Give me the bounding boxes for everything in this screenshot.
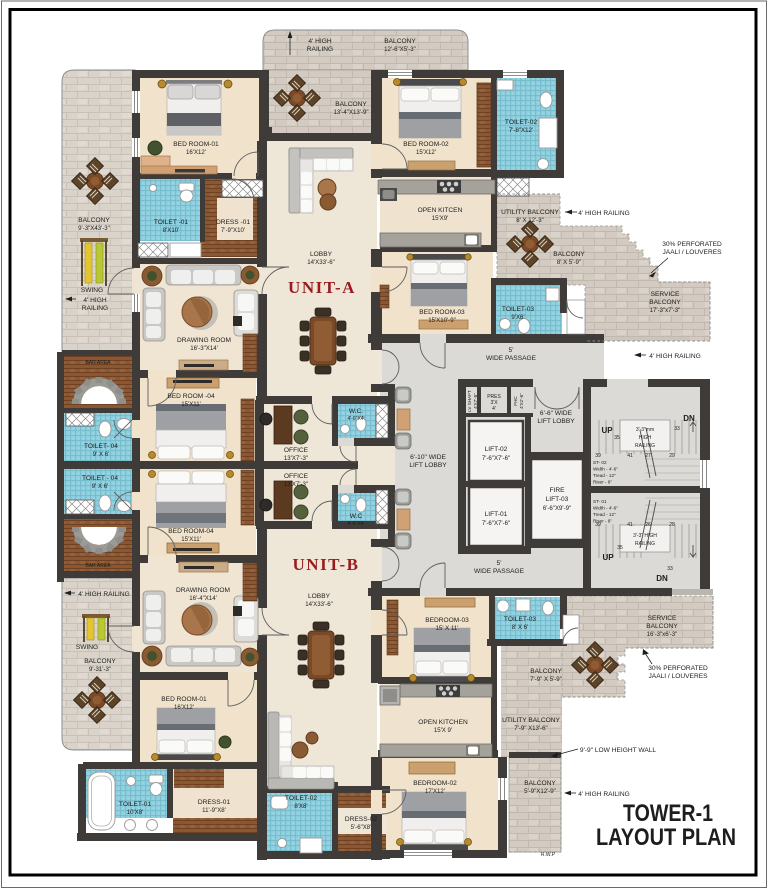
svg-text:9' X 6': 9' X 6' — [92, 483, 109, 490]
svg-text:12'-6"X5'-3": 12'-6"X5'-3" — [384, 46, 416, 53]
svg-text:4'-6"X4': 4'-6"X4' — [347, 416, 364, 422]
svg-text:TOWER-1: TOWER-1 — [623, 800, 713, 827]
svg-text:Tread - 12": Tread - 12" — [593, 512, 616, 517]
svg-text:17'-3"x7'-3": 17'-3"x7'-3" — [650, 307, 681, 314]
svg-text:SWING: SWING — [76, 644, 98, 651]
svg-text:OFFICE: OFFICE — [284, 447, 309, 454]
svg-text:HIGH: HIGH — [639, 435, 652, 441]
svg-text:39: 39 — [595, 453, 601, 459]
svg-text:LAYOUT PLAN: LAYOUT PLAN — [596, 824, 736, 851]
svg-text:4' HIGH: 4' HIGH — [308, 38, 331, 45]
svg-text:7'-9" X 5'-9": 7'-9" X 5'-9" — [530, 676, 562, 683]
svg-text:BALCONY: BALCONY — [335, 101, 367, 108]
svg-text:UP: UP — [602, 553, 614, 562]
svg-text:4' HIGH RAILING: 4' HIGH RAILING — [578, 210, 629, 217]
svg-text:13'X7'-3": 13'X7'-3" — [284, 455, 308, 462]
svg-text:41: 41 — [627, 522, 633, 528]
svg-text:TOILET-02: TOILET-02 — [505, 119, 537, 126]
svg-text:7'-9"X10': 7'-9"X10' — [221, 227, 245, 234]
svg-text:LIFT-01: LIFT-01 — [485, 511, 508, 518]
svg-text:8' X 5'-9": 8' X 5'-9" — [557, 259, 581, 266]
svg-text:RAILING: RAILING — [635, 443, 655, 449]
svg-text:UP: UP — [601, 426, 613, 435]
svg-text:9'-31'-3": 9'-31'-3" — [89, 666, 111, 673]
svg-text:TOILET-01: TOILET-01 — [119, 801, 151, 808]
svg-text:15'X9': 15'X9' — [432, 215, 449, 222]
svg-text:FHC: FHC — [513, 396, 518, 406]
svg-text:OFFICE: OFFICE — [284, 473, 309, 480]
svg-text:27: 27 — [645, 453, 651, 459]
svg-text:6'-6" WIDE: 6'-6" WIDE — [540, 410, 573, 417]
svg-text:TOILET-03: TOILET-03 — [502, 306, 534, 313]
svg-text:15'X10'-9": 15'X10'-9" — [428, 317, 456, 324]
svg-text:14'X33'-6": 14'X33'-6" — [305, 601, 333, 608]
svg-text:9'X6': 9'X6' — [511, 314, 524, 321]
svg-text:DRAWING ROOM: DRAWING ROOM — [176, 587, 230, 594]
svg-text:8'X8': 8'X8' — [294, 803, 307, 810]
svg-text:LIFT LOBBY: LIFT LOBBY — [537, 418, 575, 425]
svg-text:LOBBY: LOBBY — [310, 251, 333, 258]
svg-text:4' HIGH RAILING: 4' HIGH RAILING — [649, 353, 700, 360]
svg-text:UTILITY BALCONY: UTILITY BALCONY — [501, 209, 559, 216]
svg-text:SERVICE: SERVICE — [651, 291, 680, 298]
svg-text:BALCONY: BALCONY — [649, 299, 681, 306]
svg-text:RAILING: RAILING — [307, 46, 333, 53]
svg-text:BAR AREA: BAR AREA — [85, 360, 111, 366]
svg-text:WIDE PASSAGE: WIDE PASSAGE — [474, 568, 525, 575]
svg-text:TOILET- 04: TOILET- 04 — [84, 443, 118, 450]
svg-text:29: 29 — [669, 453, 675, 459]
svg-text:DN: DN — [683, 414, 695, 423]
svg-text:8' X 6': 8' X 6' — [512, 624, 529, 631]
svg-text:LIFT-02: LIFT-02 — [485, 446, 508, 453]
svg-text:9' X 6': 9' X 6' — [93, 451, 110, 458]
svg-text:15'X12': 15'X12' — [416, 149, 436, 156]
svg-text:FIRE: FIRE — [549, 487, 565, 494]
svg-text:UNIT-B: UNIT-B — [293, 555, 360, 574]
svg-text:ST- 01: ST- 01 — [593, 499, 607, 504]
svg-text:7'-6"X7'-6": 7'-6"X7'-6" — [482, 520, 510, 527]
svg-text:OPEN KITCHEN: OPEN KITCHEN — [418, 719, 468, 726]
svg-text:4'X7'-6": 4'X7'-6" — [473, 393, 478, 409]
svg-text:6'-10" WIDE: 6'-10" WIDE — [410, 454, 446, 461]
svg-text:UTILITY BALCONY: UTILITY BALCONY — [502, 717, 560, 724]
svg-text:10'X8': 10'X8' — [127, 809, 144, 816]
svg-text:16'X12': 16'X12' — [186, 149, 206, 156]
svg-text:4': 4' — [492, 406, 496, 412]
svg-text:16'-3"X14': 16'-3"X14' — [190, 345, 218, 352]
svg-text:15' X 11': 15' X 11' — [436, 625, 459, 632]
svg-text:DRAWING ROOM: DRAWING ROOM — [177, 337, 231, 344]
svg-text:35: 35 — [614, 435, 620, 441]
svg-text:Riser - 6": Riser - 6" — [593, 480, 612, 485]
svg-text:Tread - 12": Tread - 12" — [593, 473, 616, 478]
svg-text:39: 39 — [595, 522, 601, 528]
svg-text:5': 5' — [497, 560, 502, 567]
svg-text:BALCONY: BALCONY — [384, 38, 416, 45]
svg-text:Width - 4'-6": Width - 4'-6" — [593, 467, 618, 472]
svg-text:BEDROOM-03: BEDROOM-03 — [425, 617, 469, 624]
svg-text:5': 5' — [509, 347, 514, 354]
svg-text:28: 28 — [669, 522, 675, 528]
svg-text:4'-6"X4': 4'-6"X4' — [347, 521, 364, 527]
svg-text:4' HIGH RAILING: 4' HIGH RAILING — [78, 591, 129, 598]
svg-text:JAALI / LOUVERES: JAALI / LOUVERES — [663, 249, 723, 256]
svg-text:BED ROOM -04: BED ROOM -04 — [167, 393, 215, 400]
svg-text:16'X12': 16'X12' — [174, 704, 194, 711]
svg-text:3'-3" HIGH: 3'-3" HIGH — [633, 533, 657, 539]
svg-text:TOILET - 04: TOILET - 04 — [82, 475, 118, 482]
svg-text:JAALI / LOUVERES: JAALI / LOUVERES — [649, 673, 709, 680]
svg-text:TOILET-03: TOILET-03 — [504, 616, 536, 623]
svg-text:BED ROOM-04: BED ROOM-04 — [168, 528, 214, 535]
svg-text:R.W.P: R.W.P — [541, 852, 556, 858]
svg-text:SWING: SWING — [81, 287, 103, 294]
svg-text:RAILING: RAILING — [635, 541, 655, 547]
svg-text:DRESS -01: DRESS -01 — [216, 219, 250, 226]
svg-text:11'-9"X8': 11'-9"X8' — [202, 807, 226, 814]
svg-text:8'X10': 8'X10' — [163, 227, 180, 234]
svg-text:W.C.: W.C. — [349, 408, 363, 415]
svg-text:4' HIGH: 4' HIGH — [83, 297, 106, 304]
svg-text:3'-3"mm: 3'-3"mm — [636, 427, 654, 433]
svg-text:BALCONY: BALCONY — [524, 780, 556, 787]
svg-text:SERVICE: SERVICE — [648, 615, 677, 622]
svg-text:BALCONY: BALCONY — [530, 668, 562, 675]
svg-text:8' X 12'-3": 8' X 12'-3" — [516, 217, 544, 224]
svg-text:BED ROOM-01: BED ROOM-01 — [173, 141, 219, 148]
svg-text:33: 33 — [674, 426, 680, 432]
svg-text:RAILING: RAILING — [82, 305, 108, 312]
svg-text:BED ROOM-01: BED ROOM-01 — [161, 696, 207, 703]
svg-text:BEDROOM-02: BEDROOM-02 — [413, 780, 457, 787]
svg-text:17'X12': 17'X12' — [425, 788, 445, 795]
svg-text:6'-6"X9'-9": 6'-6"X9'-9" — [543, 505, 571, 512]
svg-text:13'X7'-3": 13'X7'-3" — [284, 481, 308, 488]
svg-text:35: 35 — [617, 545, 623, 551]
svg-text:TOILET-02: TOILET-02 — [285, 795, 317, 802]
svg-text:UNIT-A: UNIT-A — [288, 278, 356, 297]
svg-text:30% PERFORATED: 30% PERFORATED — [662, 241, 722, 248]
svg-text:BALCONY: BALCONY — [78, 217, 110, 224]
svg-text:41: 41 — [627, 453, 633, 459]
svg-text:ST- 02: ST- 02 — [593, 460, 607, 465]
svg-text:7'-8"X12': 7'-8"X12' — [509, 127, 533, 134]
svg-text:30% PERFORATED: 30% PERFORATED — [648, 665, 708, 672]
svg-text:LIFT LOBBY: LIFT LOBBY — [409, 462, 447, 469]
svg-text:5'-6"X8': 5'-6"X8' — [351, 824, 372, 831]
svg-text:BED ROOM-02: BED ROOM-02 — [403, 141, 449, 148]
svg-text:LOBBY: LOBBY — [308, 593, 331, 600]
svg-text:15'X 9': 15'X 9' — [434, 727, 452, 734]
svg-text:5'-9"X12'-9": 5'-9"X12'-9" — [524, 788, 556, 795]
svg-text:TOILET -01: TOILET -01 — [154, 219, 189, 226]
svg-text:LV SHAFT: LV SHAFT — [467, 390, 472, 412]
svg-text:4' HIGH RAILING: 4' HIGH RAILING — [578, 791, 629, 798]
svg-text:BALCONY: BALCONY — [646, 623, 678, 630]
svg-text:BED ROOM-03: BED ROOM-03 — [419, 309, 465, 316]
svg-text:7'-9" X13'-6": 7'-9" X13'-6" — [514, 725, 547, 732]
svg-text:15'X11': 15'X11' — [181, 401, 201, 408]
svg-text:BALCONY: BALCONY — [84, 658, 116, 665]
svg-text:16'-4"X14': 16'-4"X14' — [189, 595, 217, 602]
svg-text:15'X11': 15'X11' — [181, 536, 201, 543]
svg-text:33: 33 — [667, 566, 673, 572]
svg-text:DRESS-01: DRESS-01 — [198, 799, 231, 806]
svg-text:DN: DN — [656, 574, 668, 583]
svg-text:Width - 4'-6": Width - 4'-6" — [593, 506, 618, 511]
svg-text:W.C: W.C — [350, 513, 363, 520]
svg-text:4'X2'-6": 4'X2'-6" — [519, 393, 524, 409]
svg-text:LIFT-03: LIFT-03 — [546, 496, 569, 503]
svg-text:13'-4"X13'-9": 13'-4"X13'-9" — [333, 109, 368, 116]
svg-text:BALCONY: BALCONY — [553, 251, 585, 258]
svg-text:DRESS-02: DRESS-02 — [345, 816, 378, 823]
svg-text:WIDE PASSAGE: WIDE PASSAGE — [486, 355, 537, 362]
svg-text:OPEN KITCEN: OPEN KITCEN — [418, 207, 463, 214]
svg-text:BAR AREA: BAR AREA — [85, 563, 111, 569]
svg-text:9'-3"X43'-3": 9'-3"X43'-3" — [78, 225, 110, 232]
svg-text:26: 26 — [645, 522, 651, 528]
svg-text:7'-6"X7'-6": 7'-6"X7'-6" — [482, 455, 510, 462]
svg-text:16'-3"x6'-3": 16'-3"x6'-3" — [647, 631, 678, 638]
svg-text:9'-9" LOW HEIGHT WALL: 9'-9" LOW HEIGHT WALL — [580, 747, 656, 754]
svg-text:14'X33'-6": 14'X33'-6" — [307, 259, 335, 266]
